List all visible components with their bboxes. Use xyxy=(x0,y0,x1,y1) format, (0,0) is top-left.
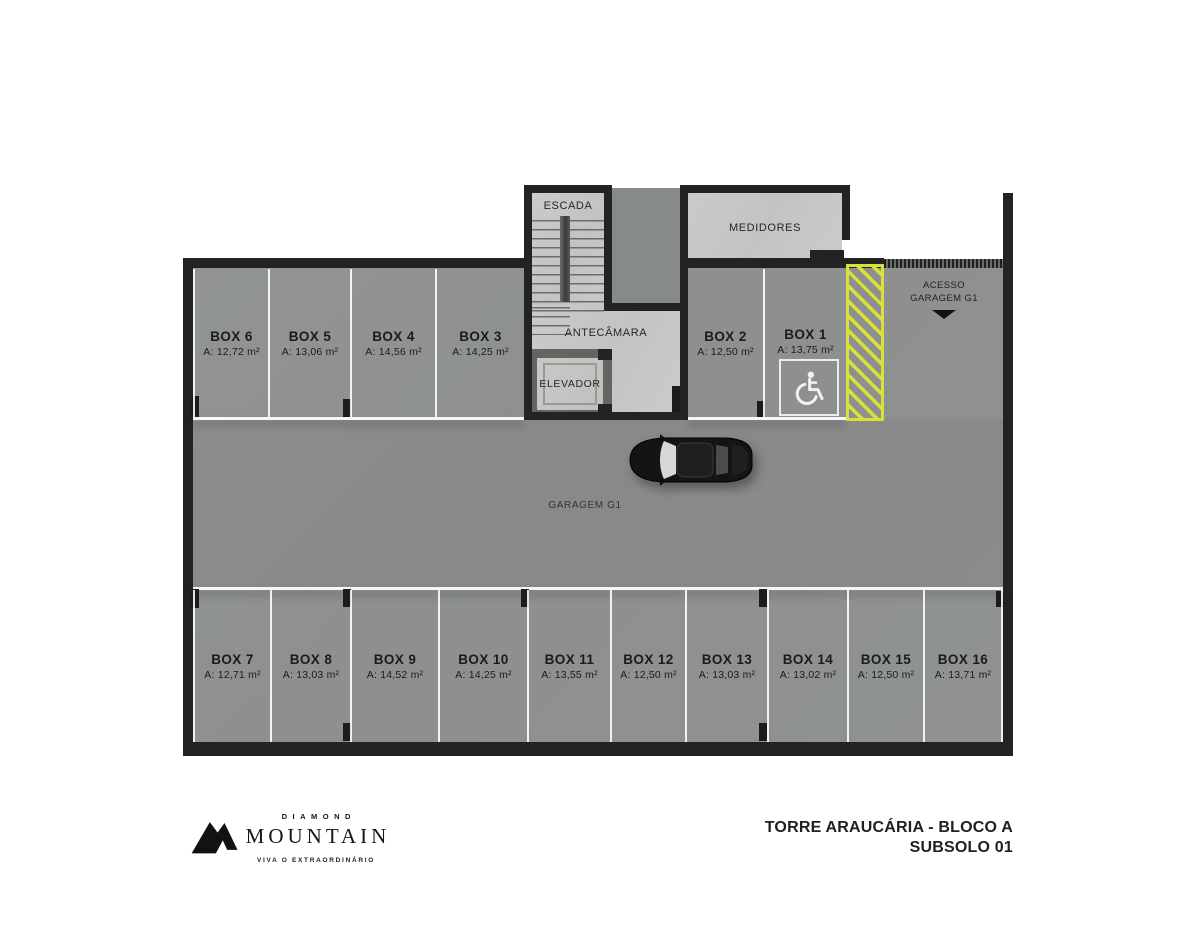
box-area: A: 13,06 m² xyxy=(282,346,338,358)
parking-box-1-accessible: BOX 1 A: 13,75 m² xyxy=(763,269,846,417)
floorplan-canvas: ACESSO GARAGEM G1 ESCADA MEDIDORES ANTEC… xyxy=(0,0,1200,933)
box-label: BOX 12 xyxy=(623,652,673,667)
wall-left xyxy=(183,258,193,756)
plan-title-line2: SUBSOLO 01 xyxy=(613,838,1013,858)
top-boxes-front-line xyxy=(193,417,524,420)
box-label: BOX 11 xyxy=(545,652,595,667)
shaft-block xyxy=(612,188,680,305)
parking-box-7: BOX 7 A: 12,71 m² xyxy=(193,590,270,742)
parking-box-10: BOX 10 A: 14,25 m² xyxy=(438,590,527,742)
parking-box-12: BOX 12 A: 12,50 m² xyxy=(610,590,685,742)
box-label: BOX 2 xyxy=(704,329,747,344)
meter-room-top-wall xyxy=(680,185,850,193)
wall-right xyxy=(1003,193,1013,756)
box-label: BOX 7 xyxy=(211,652,254,667)
garage-gate xyxy=(884,259,1003,268)
car-top-view xyxy=(620,430,760,490)
wall-bottom xyxy=(183,742,1013,756)
box-label: BOX 3 xyxy=(459,329,502,344)
parking-box-5: BOX 5 A: 13,06 m² xyxy=(268,269,350,417)
access-line2: GARAGEM G1 xyxy=(884,292,1004,305)
parking-box-3: BOX 3 A: 14,25 m² xyxy=(435,269,524,417)
parking-box-11: BOX 11 A: 13,55 m² xyxy=(527,590,610,742)
garage-level-label: GARAGEM G1 xyxy=(535,500,635,511)
parking-box-6: BOX 6 A: 12,72 m² xyxy=(193,269,268,417)
core-bottom-wall xyxy=(524,412,688,420)
box-area: A: 12,72 m² xyxy=(203,346,259,358)
plan-title-line1: TORRE ARAUCÁRIA - BLOCO A xyxy=(613,818,1013,838)
box-label: BOX 10 xyxy=(458,652,508,667)
box-label: BOX 6 xyxy=(210,329,253,344)
box-area: A: 12,50 m² xyxy=(697,346,753,358)
door-jamb xyxy=(672,386,680,412)
box-area: A: 13,03 m² xyxy=(699,669,755,681)
box-label: BOX 9 xyxy=(374,652,417,667)
brand-main-text: MOUNTAIN xyxy=(216,824,416,849)
parking-box-14: BOX 14 A: 13,02 m² xyxy=(767,590,847,742)
parking-box-9: BOX 9 A: 14,52 m² xyxy=(350,590,438,742)
box-area: A: 14,25 m² xyxy=(455,669,511,681)
box-area: A: 13,75 m² xyxy=(777,344,833,356)
antechamber-label: ANTECÂMARA xyxy=(536,327,676,339)
shaft-bottom-wall xyxy=(604,303,680,311)
parking-box-16: BOX 16 A: 13,71 m² xyxy=(923,590,1003,742)
box-area: A: 12,50 m² xyxy=(858,669,914,681)
box-area: A: 13,03 m² xyxy=(283,669,339,681)
brand-top-text: DIAMOND xyxy=(216,812,416,821)
box-area: A: 12,71 m² xyxy=(204,669,260,681)
access-label: ACESSO GARAGEM G1 xyxy=(884,279,1004,305)
stair-stringer xyxy=(560,216,570,302)
access-line1: ACESSO xyxy=(884,279,1004,292)
box-label: BOX 1 xyxy=(784,327,827,342)
box-area: A: 14,25 m² xyxy=(452,346,508,358)
core-east-wall xyxy=(680,185,688,420)
box-area: A: 13,55 m² xyxy=(541,669,597,681)
top-right-boxes-front-line xyxy=(688,417,846,420)
box-area: A: 13,71 m² xyxy=(935,669,991,681)
box-area: A: 13,02 m² xyxy=(780,669,836,681)
wall-top-left-segment xyxy=(183,258,524,268)
parking-box-8: BOX 8 A: 13,03 m² xyxy=(270,590,350,742)
brand-block: DIAMOND MOUNTAIN VIVA O EXTRAORDINÁRIO xyxy=(216,812,416,864)
elevator-label: ELEVADOR xyxy=(530,378,610,390)
box-area: A: 14,56 m² xyxy=(365,346,421,358)
parking-box-2: BOX 2 A: 12,50 m² xyxy=(688,269,763,417)
box-label: BOX 16 xyxy=(938,652,988,667)
stairwell-top-wall xyxy=(524,185,612,193)
parking-box-13: BOX 13 A: 13,03 m² xyxy=(685,590,767,742)
meters-label: MEDIDORES xyxy=(688,222,842,234)
box-label: BOX 4 xyxy=(372,329,415,344)
box-label: BOX 8 xyxy=(290,652,333,667)
parking-box-4: BOX 4 A: 14,56 m² xyxy=(350,269,435,417)
access-arrow-icon xyxy=(932,310,956,319)
meter-room-east-wall xyxy=(842,185,850,240)
elevator-wall-stub xyxy=(598,349,612,360)
brand-tagline: VIVA O EXTRAORDINÁRIO xyxy=(216,857,416,864)
box-label: BOX 5 xyxy=(289,329,332,344)
parking-box-15: BOX 15 A: 12,50 m² xyxy=(847,590,923,742)
box-label: BOX 14 xyxy=(783,652,833,667)
box-area: A: 12,50 m² xyxy=(620,669,676,681)
box-area: A: 14,52 m² xyxy=(367,669,423,681)
hatched-no-parking-strip xyxy=(846,264,884,421)
box-label: BOX 15 xyxy=(861,652,911,667)
stairs-label: ESCADA xyxy=(528,200,608,212)
plan-title: TORRE ARAUCÁRIA - BLOCO A SUBSOLO 01 xyxy=(613,818,1013,858)
box-label: BOX 13 xyxy=(702,652,752,667)
meter-room-counter xyxy=(810,250,844,258)
